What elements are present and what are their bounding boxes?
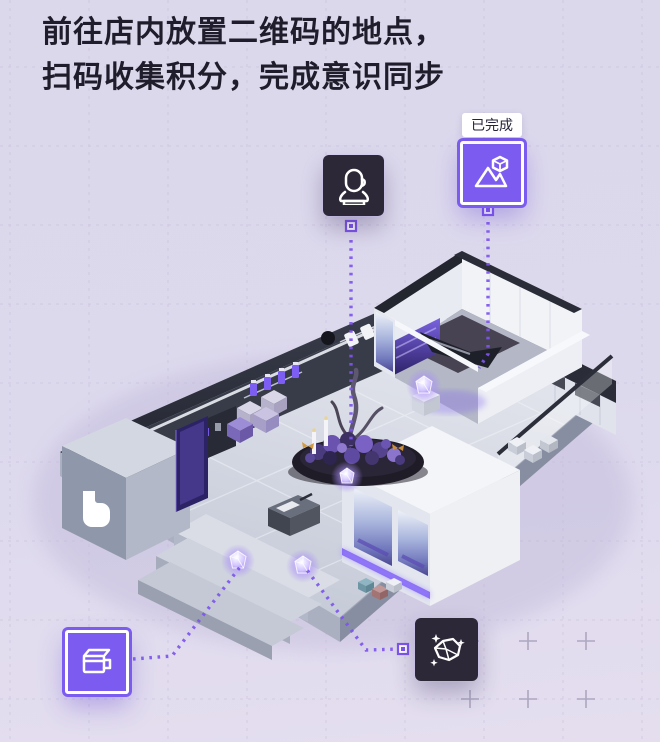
mirror-panel — [176, 416, 208, 512]
coffee-mug-icon — [78, 643, 116, 681]
status-badge-completed: 已完成 — [462, 113, 522, 137]
map-badge-coffee-bar[interactable] — [65, 630, 129, 694]
microphone-icon — [335, 167, 373, 205]
quest-map-screen: 前往店内放置二维码的地点， 扫码收集积分，完成意识同步 已完成 — [0, 0, 660, 742]
page-title-line1: 前往店内放置二维码的地点， — [42, 10, 445, 55]
page-title: 前往店内放置二维码的地点， 扫码收集积分，完成意识同步 — [42, 10, 445, 100]
collect-point-gem[interactable] — [331, 461, 363, 493]
map-badge-photo-spot[interactable]: 已完成 — [460, 141, 524, 205]
map-badge-voice-booth[interactable] — [323, 155, 384, 216]
mountain-gem-icon — [473, 154, 511, 192]
collect-point-gem[interactable] — [221, 544, 255, 578]
store-isometric-render — [32, 251, 660, 667]
plus-markers — [461, 632, 595, 708]
map-badge-gem-display[interactable] — [415, 618, 478, 681]
page-title-line2: 扫码收集积分，完成意识同步 — [42, 55, 445, 100]
gem-sparkle-icon — [427, 630, 467, 670]
collect-point-gem[interactable] — [406, 368, 442, 404]
